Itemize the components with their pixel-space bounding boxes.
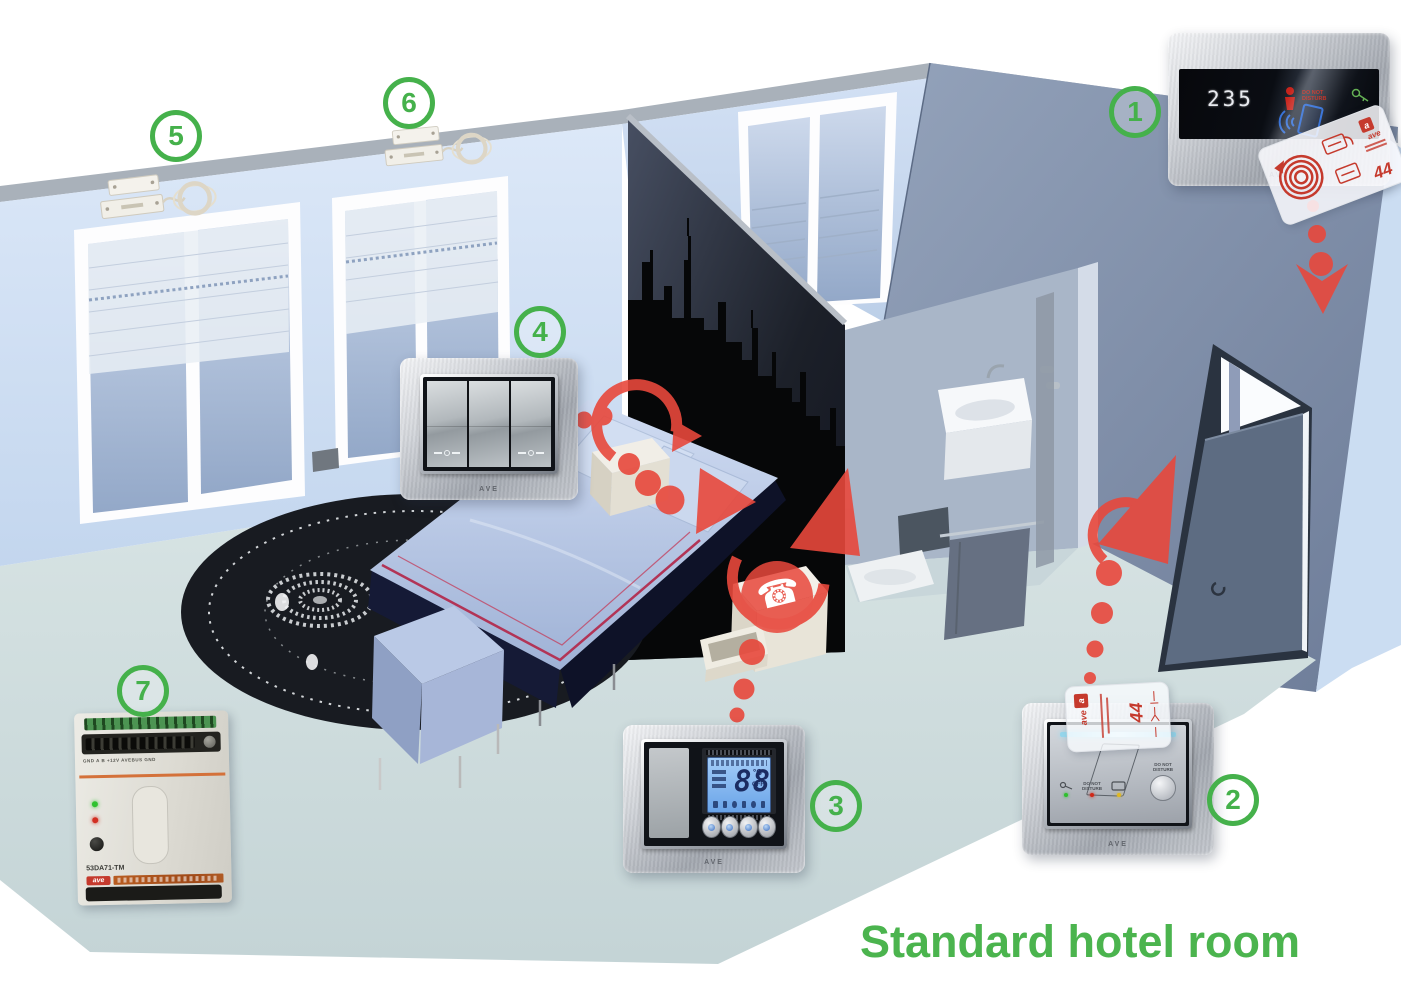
badge-6: 6 <box>383 77 435 129</box>
key-icon <box>1059 781 1073 797</box>
lcd-mode-icons <box>712 770 726 790</box>
thermostat-lcd: 888 °C OFF <box>707 757 771 813</box>
temperature-unit: °C <box>753 768 762 777</box>
keycard-number: 44 <box>1126 702 1148 723</box>
badge-4: 4 <box>514 306 566 358</box>
wall-edge <box>1078 262 1098 548</box>
do-not-disturb-text: DO NOTDISTURB <box>1302 90 1326 102</box>
do-not-disturb-button <box>1150 775 1176 801</box>
description-stripe <box>113 874 223 885</box>
thermostat-display-unit: 888 °C OFF <box>702 748 776 814</box>
hotel-room-diagram: ☎ 235 DO NOTDISTURB <box>0 0 1401 1001</box>
badge-2: 2 <box>1207 774 1259 826</box>
thermostat-button <box>721 816 740 838</box>
red-led <box>1090 793 1094 797</box>
thermostat-button <box>739 816 758 838</box>
bottom-terminals <box>86 885 222 902</box>
rug-ornament <box>275 593 289 611</box>
shower-glass <box>1036 292 1054 568</box>
thermostat-panel: 888 °C OFF <box>623 725 805 873</box>
do-not-disturb-label: DO NOTDISTURB <box>1082 781 1102 797</box>
rocker-switch-3 <box>511 381 551 467</box>
blank-module <box>649 748 689 838</box>
brand-label: AVE <box>623 859 805 866</box>
thermostat-button <box>702 816 721 838</box>
rocker-switch-2 <box>469 381 509 467</box>
wall-switch-small <box>312 448 339 472</box>
thermostat-button <box>758 816 777 838</box>
badge-7: 7 <box>117 665 169 717</box>
card-hanger-drawing <box>1146 689 1165 742</box>
room-number-display: 235 <box>1207 87 1254 111</box>
rug-ornament <box>306 654 318 670</box>
program-button <box>90 837 104 851</box>
diagram-title: Standard hotel room <box>850 916 1310 968</box>
red-led <box>92 817 98 823</box>
ave-logo: ave <box>86 876 110 886</box>
rocker-switch-1 <box>427 381 467 467</box>
vent-slots <box>81 732 220 755</box>
off-indicator: OFF <box>752 782 764 788</box>
terminal-labels: GND A B +12V AVEBUS GND <box>83 756 223 764</box>
do-not-disturb-button-group: DO NOTDISTURB <box>1150 762 1176 801</box>
green-led <box>1064 793 1068 797</box>
yellow-led <box>1117 793 1121 797</box>
thermostat-module: 888 °C OFF <box>644 742 784 846</box>
keycard-number: 44 <box>1371 159 1396 184</box>
badge-3: 3 <box>810 780 862 832</box>
green-led <box>92 801 98 807</box>
brand-label: AVE <box>1022 841 1214 848</box>
lcd-status-icons <box>713 801 765 809</box>
front-cover <box>132 786 170 865</box>
ave-logo-text: ave <box>1078 710 1089 726</box>
model-number: 53DA71-TM <box>86 865 124 873</box>
ave-logo: a <box>1074 694 1089 709</box>
inserted-keycard: a ave 44 <box>1064 681 1171 752</box>
thermostat-buttons <box>702 816 776 838</box>
badge-1: 1 <box>1109 86 1161 138</box>
window-1 <box>74 202 305 524</box>
key-icon <box>1351 88 1371 104</box>
brand-label: AVE <box>400 486 578 493</box>
do-not-disturb-person-icon <box>1283 86 1297 112</box>
light-switch-panel: AVE <box>400 358 578 500</box>
do-not-disturb-button-label: DO NOTDISTURB <box>1150 762 1176 772</box>
din-control-unit: GND A B +12V AVEBUS GND 53DA71-TM ave <box>76 712 230 904</box>
card-icon <box>1111 781 1127 797</box>
badge-5: 5 <box>150 110 202 162</box>
terminal-block <box>84 716 216 731</box>
